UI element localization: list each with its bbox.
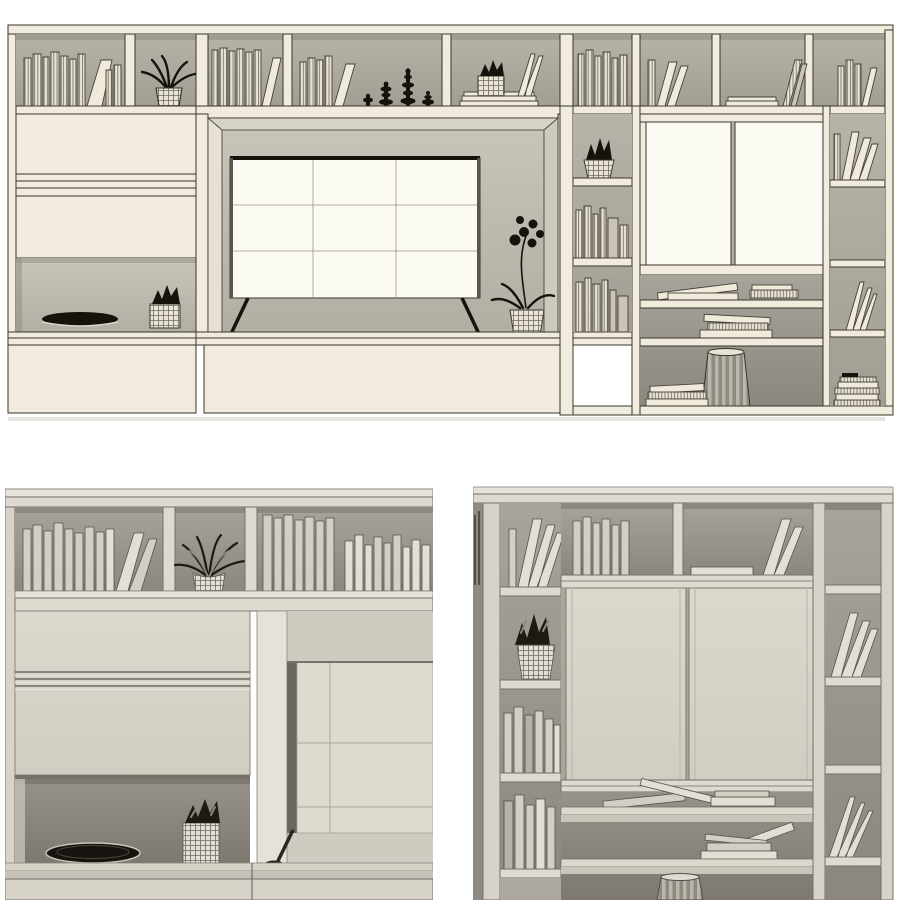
lc-shelf-3 xyxy=(500,773,561,782)
rc-shelf-4 xyxy=(825,857,881,866)
side-panel xyxy=(257,611,287,863)
base-cabinet-left xyxy=(8,345,196,413)
fluted-side-table xyxy=(702,349,750,407)
left-cabinet-section xyxy=(8,114,204,413)
sliding-door-right xyxy=(735,122,823,265)
column-shelf-2 xyxy=(573,258,632,266)
counter-top xyxy=(5,863,433,871)
top-board-surface xyxy=(473,487,893,494)
right-shelf-column xyxy=(823,106,885,406)
base-drawers xyxy=(5,879,433,900)
view-detail-right xyxy=(473,487,893,900)
woven-tray xyxy=(46,843,140,863)
niche-left-wall xyxy=(196,114,208,332)
view-detail-left xyxy=(5,489,433,900)
tv-stand-base xyxy=(204,345,562,413)
top-row-divider xyxy=(163,507,175,591)
top-board-edge xyxy=(5,497,433,507)
drawer-front-upper xyxy=(16,114,196,174)
product-preview-image xyxy=(0,0,900,900)
shelf-A xyxy=(561,807,818,815)
sliding-door-left xyxy=(645,122,731,265)
niche-top-board xyxy=(196,106,570,118)
right-unit-bottom-board xyxy=(640,406,893,415)
rc-shelf-1 xyxy=(830,180,885,187)
shelf-B xyxy=(561,859,818,867)
top-row-shelf-lip xyxy=(15,591,433,598)
lc-shelf-2 xyxy=(500,680,561,689)
door-top-rail xyxy=(640,114,830,122)
right-outer-wall xyxy=(881,503,893,900)
counter-edge xyxy=(5,871,433,879)
rc-shelf-2 xyxy=(830,260,885,267)
render-composite xyxy=(0,0,900,900)
left-wall xyxy=(5,507,15,900)
cabinet-door xyxy=(15,611,250,775)
column-shelf-1 xyxy=(573,178,632,186)
lc-shelf-4 xyxy=(500,869,561,878)
rc-shelf-1 xyxy=(825,585,881,594)
rc-shelf-3 xyxy=(830,330,885,337)
top-row-shelf-front xyxy=(15,598,433,611)
top-board-surface xyxy=(5,489,433,497)
top-row-divider xyxy=(673,503,683,575)
rc-book-stack xyxy=(834,373,880,406)
rc-shelf-2 xyxy=(825,677,881,686)
door-bottom-shadow xyxy=(15,775,250,779)
top-board xyxy=(8,25,893,34)
sliding-door-right xyxy=(689,588,813,780)
groove-band xyxy=(16,174,196,196)
right-column-back xyxy=(825,503,881,900)
fluted-side-table xyxy=(657,874,703,900)
flat-book-stack-bottom xyxy=(646,384,708,406)
shelf-board-2 xyxy=(640,338,830,346)
narrow-shelf-column xyxy=(560,106,640,415)
top-board-edge xyxy=(473,494,893,503)
left-column-wall xyxy=(483,503,500,900)
column-bottom-board xyxy=(573,406,632,415)
door-bottom-rail xyxy=(640,265,830,275)
floor-shadow xyxy=(8,417,885,421)
lc-shelf-1 xyxy=(500,587,561,596)
flat-books-shelf-2 xyxy=(700,314,772,338)
right-side-panel xyxy=(885,30,893,415)
rc-shelf-3 xyxy=(825,765,881,774)
view-top-elevation xyxy=(8,25,893,421)
section-divider-wall xyxy=(245,507,257,591)
right-column-wall xyxy=(813,503,825,900)
shelf-board-1 xyxy=(640,300,830,308)
top-shelf-books-1 xyxy=(24,52,121,106)
drawer-front-lower xyxy=(16,196,196,258)
sliding-door-left xyxy=(566,588,686,780)
